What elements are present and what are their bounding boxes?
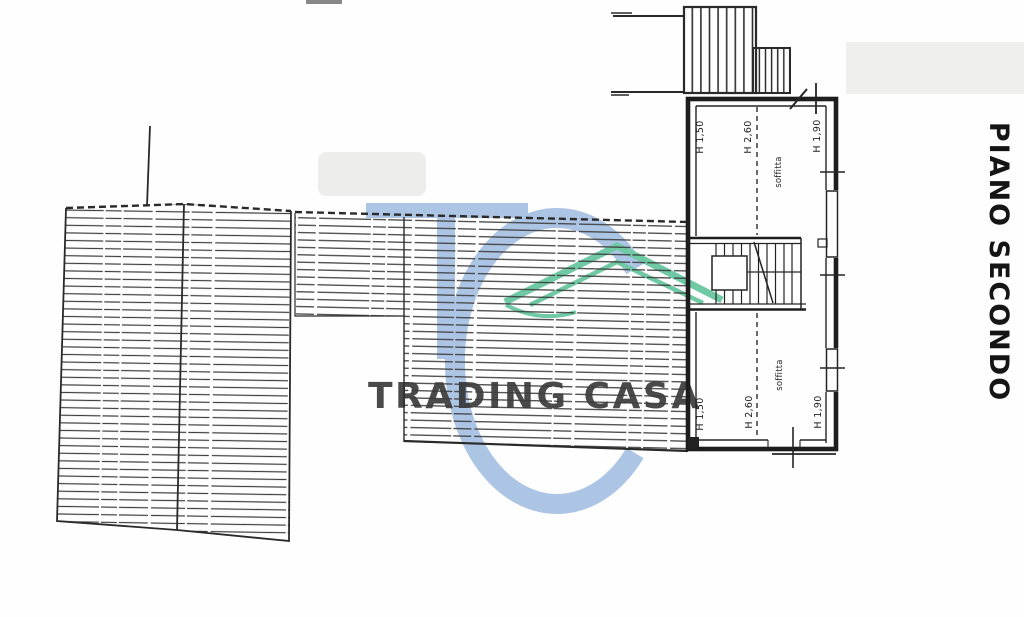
floor-plan-drawing: TRADING CASA <box>0 0 1024 617</box>
room-labels-bottom: H 1,50 H 2,60 H 1,90 soffitta <box>695 359 824 430</box>
building: H 1,50 H 2,60 H 1,90 soffitta H 1,50 H 2… <box>688 83 845 468</box>
height-label: H 1,90 <box>812 119 823 152</box>
stair-landing <box>712 256 747 290</box>
height-label: H 1,50 <box>695 397 706 430</box>
wall-pier <box>688 437 699 449</box>
staircase <box>690 238 806 310</box>
height-label: H 2,60 <box>743 120 754 153</box>
height-label: H 1,50 <box>695 120 706 153</box>
window <box>823 348 841 392</box>
height-label: H 1,90 <box>813 395 824 428</box>
stair-tower <box>611 7 790 95</box>
left-roof-hatch-area <box>57 126 291 541</box>
center-roof-hatch-area <box>295 212 688 451</box>
room-name: soffitta <box>775 359 785 390</box>
floor-plan-page: TRADING CASA <box>0 0 1024 617</box>
window <box>818 190 841 258</box>
room-name: soffitta <box>774 156 784 187</box>
scan-artifacts <box>306 0 1024 196</box>
room-labels-top: H 1,50 H 2,60 H 1,90 soffitta <box>695 119 823 187</box>
plan-title: PIANO SECONDO <box>983 122 1014 402</box>
boundary-leader-line <box>147 126 150 206</box>
height-label: H 2,60 <box>744 395 755 428</box>
